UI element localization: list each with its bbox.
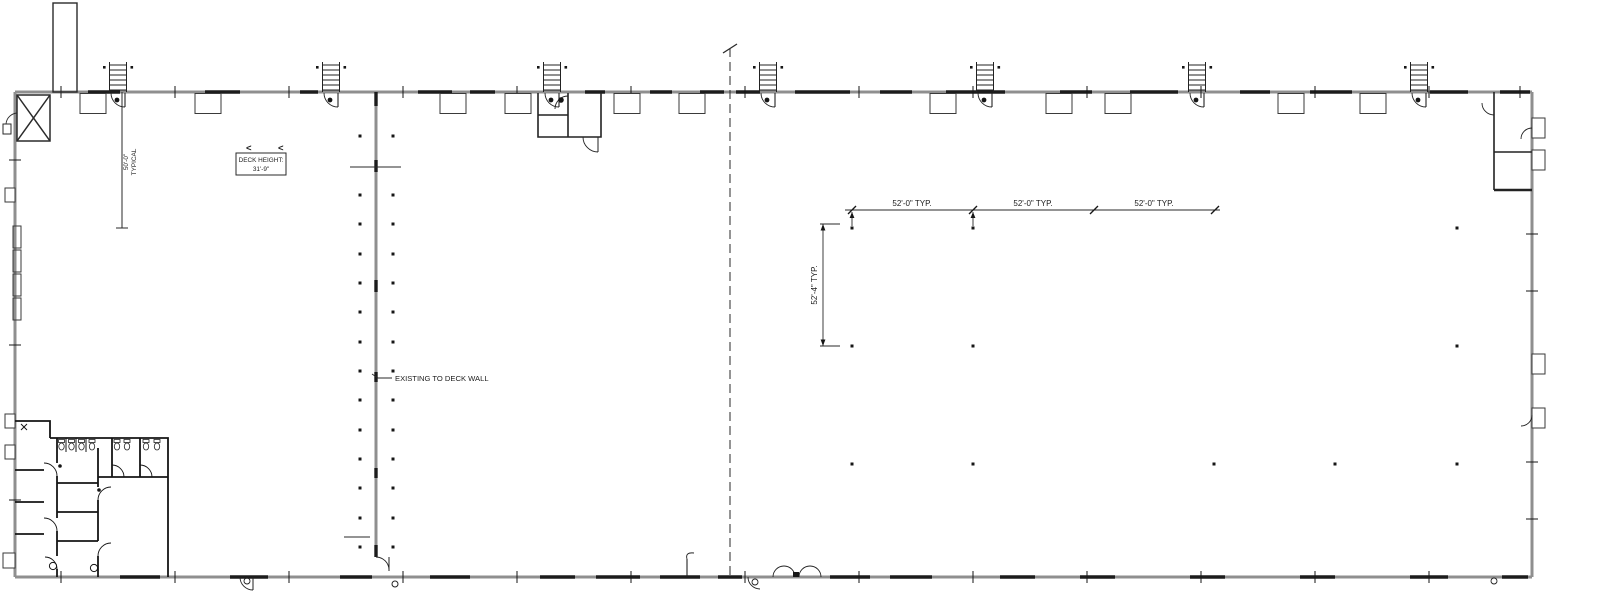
column-grid-dots [851,227,1459,466]
existing-wall-note: EXISTING TO DECK WALL [372,374,489,383]
existing-note-label: EXISTING TO DECK WALL [395,374,489,383]
northeast-corner-rooms [1482,92,1532,190]
exterior-ramp [53,3,77,92]
corner-stair-enclosure [3,95,50,141]
typical-height-word: TYPICAL [131,148,138,175]
interior-demising-wall [344,92,401,587]
bay-dim-label-3: 52'-0" TYP. [1134,199,1173,208]
door-swing-icon [761,93,775,107]
office-room-walls [15,438,168,541]
typical-height-dim: 50'-0" [123,154,130,170]
west-wall-fixtures [3,160,21,568]
floor-plan-drawing: 50'-0" TYPICAL < < DECK HEIGHT: 31'-9" [0,0,1600,615]
dock-stair-icon [537,62,567,92]
dock-stair-icon [753,62,783,92]
typical-height-note: 50'-0" TYPICAL [116,92,138,228]
door-swing-icon [1190,93,1204,107]
dock-stair-icon [316,62,346,92]
dock-stair-icon [103,62,133,92]
wall-hatch-segments [88,92,1530,577]
slope-arrow-icon: < [246,143,252,154]
door-swing-icon [376,557,389,570]
bay-dim-label-1: 52'-0" TYP. [892,199,931,208]
dock-stair-icon [970,62,1000,92]
deck-height-note: < < DECK HEIGHT: 31'-9" [236,143,286,175]
deck-height-line1: DECK HEIGHT: [239,157,284,164]
door-swing-icon [545,93,559,107]
restroom-fixtures [59,440,161,451]
door-swing-icon [1412,93,1426,107]
bay-dimension-vertical: 52'-4" TYP. [810,224,840,346]
dock-stair-icon [1182,62,1212,92]
office-corridor-walls [57,438,98,577]
bay-dim-vertical-label: 52'-4" TYP. [810,265,819,304]
bay-dim-label-2: 52'-0" TYP. [1013,199,1052,208]
north-entry-room [538,93,601,152]
centerline-dashed [723,44,737,580]
door-swing-icon [978,93,992,107]
deck-height-line2: 31'-9" [253,166,269,173]
floor-plan-sheet: 50'-0" TYPICAL < < DECK HEIGHT: 31'-9" [0,0,1600,615]
office-area [15,421,168,577]
bay-dimension-horizontal: 52'-0" TYP. 52'-0" TYP. 52'-0" TYP. [845,199,1220,226]
dock-man-doors [111,93,1426,107]
south-wall-doors [240,553,1497,590]
dock-stairs [103,62,1434,92]
slope-arrow-icon: < [278,143,284,154]
door-swing-icon [324,93,338,107]
door-swing-icon [111,93,125,107]
dock-stair-icon [1404,62,1434,92]
